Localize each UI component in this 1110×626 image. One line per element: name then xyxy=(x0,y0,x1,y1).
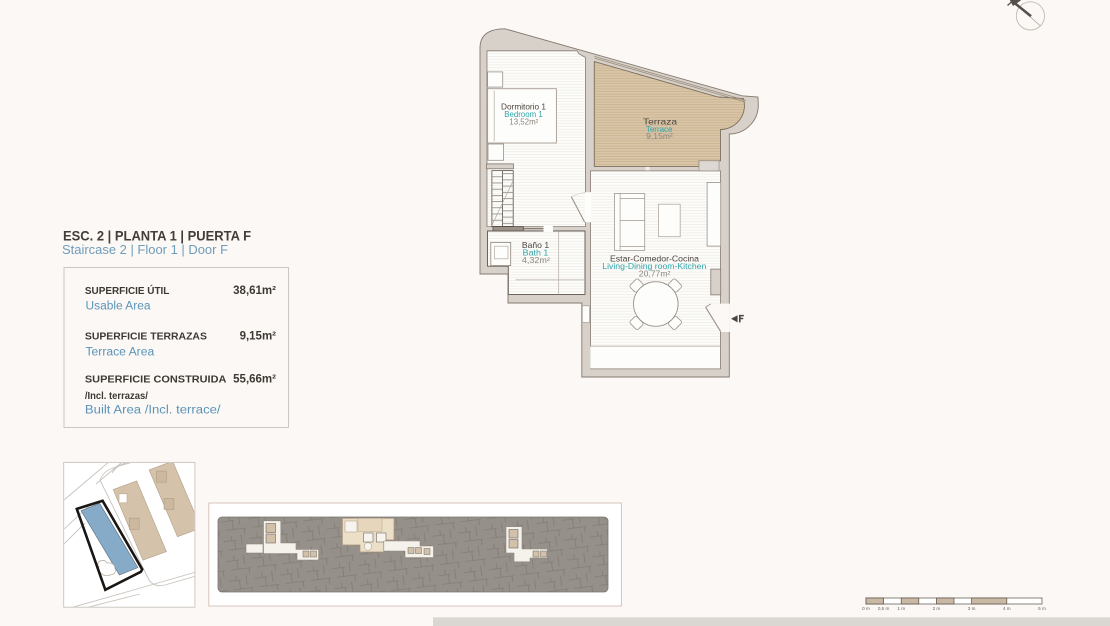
svg-text:4 m: 4 m xyxy=(1003,606,1011,611)
svg-text:Staircase 2 | Floor 1 | Door F: Staircase 2 | Floor 1 | Door F xyxy=(62,242,228,257)
svg-text:SUPERFICIE ÚTIL: SUPERFICIE ÚTIL xyxy=(85,284,170,297)
svg-text:SUPERFICIE TERRAZAS: SUPERFICIE TERRAZAS xyxy=(85,330,207,342)
svg-text:0,5 m: 0,5 m xyxy=(878,606,890,611)
svg-text:38,61m²: 38,61m² xyxy=(233,285,276,297)
svg-text:Terrace Area: Terrace Area xyxy=(86,347,155,359)
svg-text:9,15m²: 9,15m² xyxy=(240,330,277,342)
svg-text:5 m: 5 m xyxy=(1038,606,1046,611)
svg-text:13,52m²: 13,52m² xyxy=(509,118,538,127)
svg-text:/Incl. terrazas/: /Incl. terrazas/ xyxy=(85,390,148,402)
svg-text:Usable Area: Usable Area xyxy=(86,301,152,313)
svg-text:1 m: 1 m xyxy=(897,606,905,611)
svg-text:SUPERFICIE CONSTRUIDA: SUPERFICIE CONSTRUIDA xyxy=(85,373,227,385)
svg-text:Built Area /Incl. terrace/: Built Area /Incl. terrace/ xyxy=(85,405,222,417)
svg-text:4,32m²: 4,32m² xyxy=(522,256,550,265)
svg-text:55,66m²: 55,66m² xyxy=(233,373,276,385)
svg-text:20,77m²: 20,77m² xyxy=(639,269,671,278)
svg-text:9,15m²: 9,15m² xyxy=(646,131,673,141)
svg-text:3 m: 3 m xyxy=(968,606,976,611)
svg-text:2 m: 2 m xyxy=(933,606,941,611)
svg-text:0 m: 0 m xyxy=(862,606,870,611)
